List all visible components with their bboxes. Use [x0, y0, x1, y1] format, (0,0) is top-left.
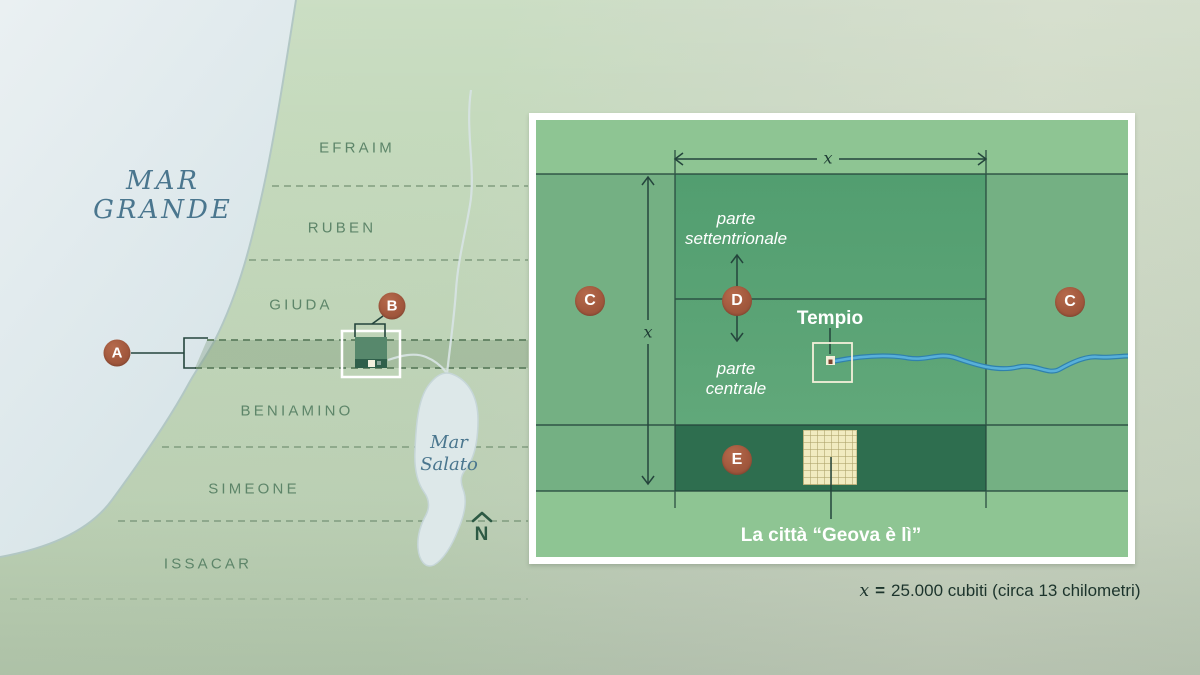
caption-equals: = [875, 581, 885, 600]
tribe-label-efraim: EFRAIM [319, 140, 395, 157]
callout-b-lines [355, 316, 385, 337]
tribe-label-issacar: ISSACAR [164, 556, 252, 573]
marker-c-right: C [1055, 287, 1085, 317]
tribe-label-simeone: SIMEONE [208, 481, 300, 498]
sea-label-line1: MAR [93, 167, 233, 196]
inset-panel: parte settentrionale parte centrale Temp… [529, 113, 1135, 564]
marker-a: A [104, 340, 131, 367]
inset-diagram-graphics [536, 120, 1128, 557]
temple-river [835, 356, 1128, 371]
temple-label: Tempio [797, 308, 863, 330]
dimension-x-left-label: x [643, 323, 652, 342]
tribe-label-ruben: RUBEN [308, 220, 377, 237]
inset-panel-inner: parte settentrionale parte centrale Temp… [536, 120, 1128, 557]
infographic-root: MAR GRANDE Mar Salato EFRAIM RUBEN GIUDA… [0, 0, 1200, 675]
central-part-line2: centrale [706, 379, 766, 399]
compass-north-label: N [475, 524, 490, 546]
lake-label-line1: Mar [420, 432, 478, 454]
north-caret-icon [473, 513, 491, 521]
tribe-label-giuda: GIUDA [269, 297, 333, 314]
scale-caption: x=25.000 cubiti (circa 13 chilometri) [860, 581, 1141, 601]
marker-b: B [379, 293, 406, 320]
marker-e: E [722, 445, 752, 475]
north-part-label: parte settentrionale [685, 209, 787, 249]
lake-label-line2: Salato [420, 454, 478, 476]
sea-label-line2: GRANDE [93, 196, 233, 225]
north-part-line1: parte [685, 209, 787, 229]
lake-label: Mar Salato [420, 432, 478, 476]
north-part-line2: settentrionale [685, 229, 787, 249]
central-part-line1: parte [706, 359, 766, 379]
caption-x-symbol: x [860, 581, 870, 601]
city-label: La città “Geova è lì” [741, 525, 922, 547]
mini-holy-square [355, 337, 387, 368]
sea-label: MAR GRANDE [93, 167, 233, 225]
dimension-x-top-label: x [823, 149, 832, 168]
tribe-label-beniamino: BENIAMINO [241, 403, 354, 420]
marker-d: D [722, 286, 752, 316]
temple-callout [813, 328, 852, 382]
caption-text: 25.000 cubiti (circa 13 chilometri) [891, 581, 1140, 600]
central-part-label: parte centrale [706, 359, 766, 399]
marker-c-left: C [575, 286, 605, 316]
sea-shape [0, 0, 296, 557]
